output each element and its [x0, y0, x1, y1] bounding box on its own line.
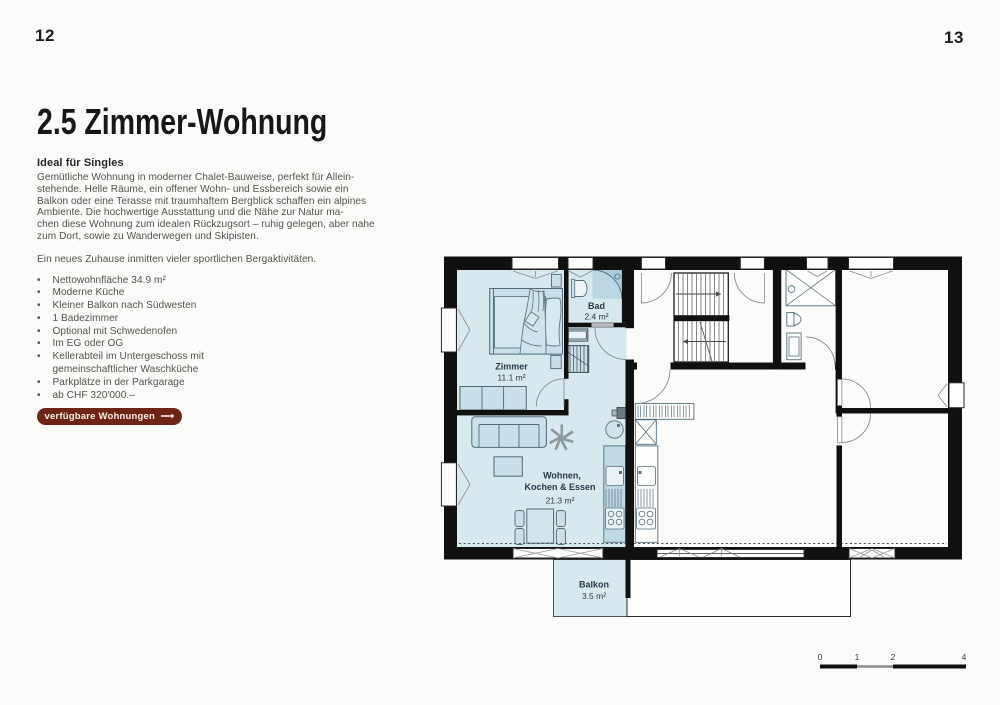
- svg-text:Bad: Bad: [588, 301, 605, 311]
- svg-text:1: 1: [855, 652, 860, 662]
- svg-text:4: 4: [962, 652, 967, 662]
- svg-text:3.5 m²: 3.5 m²: [582, 591, 606, 601]
- svg-text:Wohnen,: Wohnen,: [543, 471, 581, 481]
- svg-text:2.4 m²: 2.4 m²: [584, 312, 608, 322]
- svg-text:Kochen & Essen: Kochen & Essen: [524, 482, 595, 492]
- svg-text:Zimmer: Zimmer: [495, 362, 528, 372]
- svg-text:11.1 m²: 11.1 m²: [497, 373, 525, 383]
- svg-text:2: 2: [891, 652, 896, 662]
- svg-text:21.3 m²: 21.3 m²: [546, 496, 575, 506]
- svg-text:Balkon: Balkon: [579, 580, 609, 590]
- svg-text:0: 0: [818, 652, 823, 662]
